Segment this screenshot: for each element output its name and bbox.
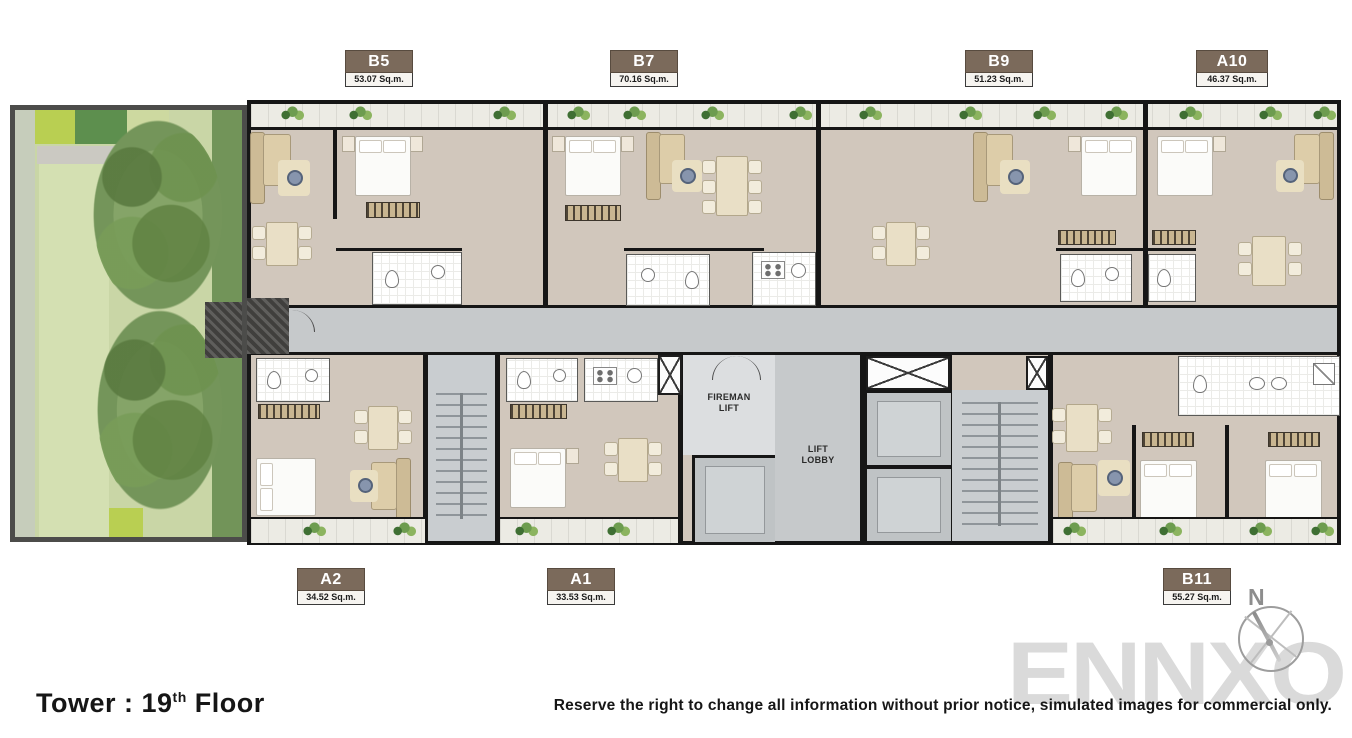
plant (348, 106, 374, 121)
lift-lobby-line2: LOBBY (782, 455, 854, 466)
toilet (385, 270, 399, 288)
dining-table (1066, 404, 1098, 452)
bathroom (256, 358, 330, 402)
sink (431, 265, 445, 279)
bathroom (626, 254, 710, 306)
fireman-lift-label: FIREMAN LIFT (688, 392, 770, 414)
chair (252, 226, 266, 240)
partition-wall (336, 248, 462, 251)
dining-table (266, 222, 298, 266)
plant (566, 106, 592, 121)
chair (252, 246, 266, 260)
plant (1104, 106, 1130, 121)
plant (700, 106, 726, 121)
toilet (1193, 375, 1207, 393)
sink (305, 369, 318, 382)
lift-car-interior (877, 401, 941, 457)
stove (761, 261, 785, 279)
chair (648, 462, 662, 476)
nightstand (1213, 136, 1226, 152)
toilet (685, 271, 699, 289)
partition-wall (1056, 248, 1196, 251)
pillow (359, 140, 382, 153)
wardrobe (366, 202, 420, 218)
chair (354, 430, 368, 444)
garden (10, 105, 247, 542)
pillow (1161, 140, 1184, 153)
bottom-balcony (1053, 517, 1337, 543)
compass: N (1224, 584, 1334, 694)
stove (593, 367, 617, 385)
pillow (1085, 140, 1108, 153)
wardrobe (1058, 230, 1116, 245)
chair (748, 200, 762, 214)
coffee-table (1008, 169, 1024, 185)
chair (872, 226, 886, 240)
lift-lobby-line1: LIFT (782, 444, 854, 455)
chair (748, 160, 762, 174)
chair (604, 442, 618, 456)
sink (1271, 377, 1287, 390)
bed (1265, 460, 1322, 520)
chair (354, 410, 368, 424)
disclaimer-text: Reserve the right to change all informat… (554, 697, 1332, 715)
unit-divider-b7-b9 (816, 104, 821, 305)
sofa-seat (1071, 464, 1097, 512)
chair (916, 226, 930, 240)
unit-label-b9: B9 51.23 Sq.m. (965, 50, 1033, 87)
chair (916, 246, 930, 260)
chair (1052, 430, 1066, 444)
plant (1248, 522, 1274, 537)
title-main: Tower : 19 (36, 688, 173, 718)
compass-hub (1266, 639, 1273, 646)
nightstand (1068, 136, 1081, 152)
sink (1249, 377, 1265, 390)
bathroom (506, 358, 578, 402)
wardrobe (1268, 432, 1320, 447)
unit-label-a2: A2 34.52 Sq.m. (297, 568, 365, 605)
garden-strip-lime (35, 110, 75, 144)
unit-id: B11 (1163, 568, 1231, 591)
sofa (396, 458, 411, 522)
title-tail: Floor (187, 688, 265, 718)
unit-label-a1: A1 33.53 Sq.m. (547, 568, 615, 605)
toilet (267, 371, 281, 389)
sink (1105, 267, 1119, 281)
unit-id: B5 (345, 50, 413, 73)
shaft-x (1026, 356, 1048, 390)
pillow (260, 488, 273, 511)
dining-table (886, 222, 916, 266)
plant (1312, 106, 1338, 121)
toilet (1071, 269, 1085, 287)
chair (298, 226, 312, 240)
nightstand (410, 136, 423, 152)
garden-lime-square (109, 508, 143, 537)
nightstand (566, 448, 579, 464)
dining-table (716, 156, 748, 216)
nightstand (342, 136, 355, 152)
wardrobe (510, 404, 567, 419)
shaft-x (866, 356, 950, 390)
bed (1157, 136, 1213, 196)
dining-table (1252, 236, 1286, 286)
unit-id: B9 (965, 50, 1033, 73)
kitchen-sink (791, 263, 806, 278)
sink (553, 369, 566, 382)
coffee-table (1283, 168, 1298, 183)
bed (1140, 460, 1197, 520)
plant (788, 106, 814, 121)
toilet (517, 371, 531, 389)
wardrobe (1142, 432, 1194, 447)
corridor-entry (247, 298, 289, 354)
chair (1052, 408, 1066, 422)
bathroom (1148, 254, 1196, 302)
unit-id: A1 (547, 568, 615, 591)
title-superscript: th (173, 689, 187, 705)
coffee-table (680, 168, 696, 184)
chair (398, 430, 412, 444)
fireman-lift-car (705, 466, 765, 534)
unit-id: A2 (297, 568, 365, 591)
lift-car-2 (864, 466, 954, 544)
partition-wall (333, 127, 337, 219)
plant (1310, 522, 1336, 537)
plant (1258, 106, 1284, 121)
garden-entry-connector (205, 302, 242, 358)
chair (748, 180, 762, 194)
kitchen (752, 252, 816, 306)
plant (514, 522, 540, 537)
unit-id: B7 (610, 50, 678, 73)
lift-car-1 (864, 390, 954, 468)
lift-car-interior (877, 477, 941, 533)
lift-lobby-label: LIFT LOBBY (782, 444, 854, 466)
toilet (1157, 269, 1171, 287)
plant (606, 522, 632, 537)
chair (604, 462, 618, 476)
unit-label-a10: A10 46.37 Sq.m. (1196, 50, 1268, 87)
coffee-table (287, 170, 303, 186)
pillow (260, 463, 273, 486)
plant (622, 106, 648, 121)
unit-label-b11: B11 55.27 Sq.m. (1163, 568, 1231, 605)
pillow (538, 452, 561, 465)
pillow (1185, 140, 1208, 153)
chair (702, 180, 716, 194)
pillow (514, 452, 537, 465)
bathroom (1060, 254, 1132, 302)
pillow (1294, 464, 1317, 477)
bathroom (1178, 356, 1340, 416)
stair-rail (460, 393, 463, 519)
unit-area: 51.23 Sq.m. (965, 73, 1033, 87)
coffee-table (1107, 470, 1123, 486)
unit-divider-b5-b7 (543, 104, 548, 305)
stair-wall (495, 352, 500, 541)
shower (1313, 363, 1335, 385)
chair (398, 410, 412, 424)
unit-label-b7: B7 70.16 Sq.m. (610, 50, 678, 87)
coffee-table (358, 478, 373, 493)
plant (1158, 522, 1184, 537)
pillow (593, 140, 616, 153)
plant (302, 522, 328, 537)
plant (1178, 106, 1204, 121)
bed (355, 136, 411, 196)
tree-canopy (93, 120, 223, 310)
unit-area: 34.52 Sq.m. (297, 591, 365, 605)
chair (1288, 262, 1302, 276)
partition-wall (624, 248, 764, 251)
corridor (251, 308, 1337, 352)
kitchen-sink (627, 368, 642, 383)
bathroom (372, 252, 462, 305)
plant (1032, 106, 1058, 121)
unit-area: 33.53 Sq.m. (547, 591, 615, 605)
chair (1238, 242, 1252, 256)
chair (648, 442, 662, 456)
stair-rail (998, 402, 1001, 526)
plant (280, 106, 306, 121)
fireman-lift-line1: FIREMAN (688, 392, 770, 403)
wardrobe (565, 205, 621, 221)
plant (858, 106, 884, 121)
pillow (1109, 140, 1132, 153)
bed (1081, 136, 1137, 196)
sofa (1319, 132, 1334, 200)
chair (1098, 430, 1112, 444)
nightstand (621, 136, 634, 152)
floorplan-page: FIREMAN LIFT LIFT LOBBY (0, 0, 1352, 738)
plant (492, 106, 518, 121)
chair (872, 246, 886, 260)
unit-label-b5: B5 53.07 Sq.m. (345, 50, 413, 87)
dining-table (618, 438, 648, 482)
pillow (1169, 464, 1192, 477)
bed (565, 136, 621, 196)
kitchen (584, 358, 658, 402)
pillow (569, 140, 592, 153)
pillow (1269, 464, 1292, 477)
chair (1098, 408, 1112, 422)
unit-area: 46.37 Sq.m. (1196, 73, 1268, 87)
chair (1288, 242, 1302, 256)
plant (392, 522, 418, 537)
bed (256, 458, 316, 516)
core-wall (1048, 352, 1053, 541)
sink (641, 268, 655, 282)
chair (702, 200, 716, 214)
bed (510, 448, 566, 508)
unit-area: 55.27 Sq.m. (1163, 591, 1231, 605)
garden-left-band (15, 110, 35, 537)
nightstand (552, 136, 565, 152)
wardrobe (258, 404, 320, 419)
page-title: Tower : 19th Floor (36, 688, 265, 719)
plant (958, 106, 984, 121)
unit-id: A10 (1196, 50, 1268, 73)
chair (1238, 262, 1252, 276)
plant (1062, 522, 1088, 537)
wardrobe (1152, 230, 1196, 245)
dining-table (368, 406, 398, 450)
shaft-x (658, 355, 682, 395)
fireman-lift-line2: LIFT (688, 403, 770, 414)
pillow (1144, 464, 1167, 477)
unit-area: 70.16 Sq.m. (610, 73, 678, 87)
fireman-lift-shaft (692, 455, 778, 545)
chair (298, 246, 312, 260)
pillow (383, 140, 406, 153)
chair (702, 160, 716, 174)
unit-area: 53.07 Sq.m. (345, 73, 413, 87)
